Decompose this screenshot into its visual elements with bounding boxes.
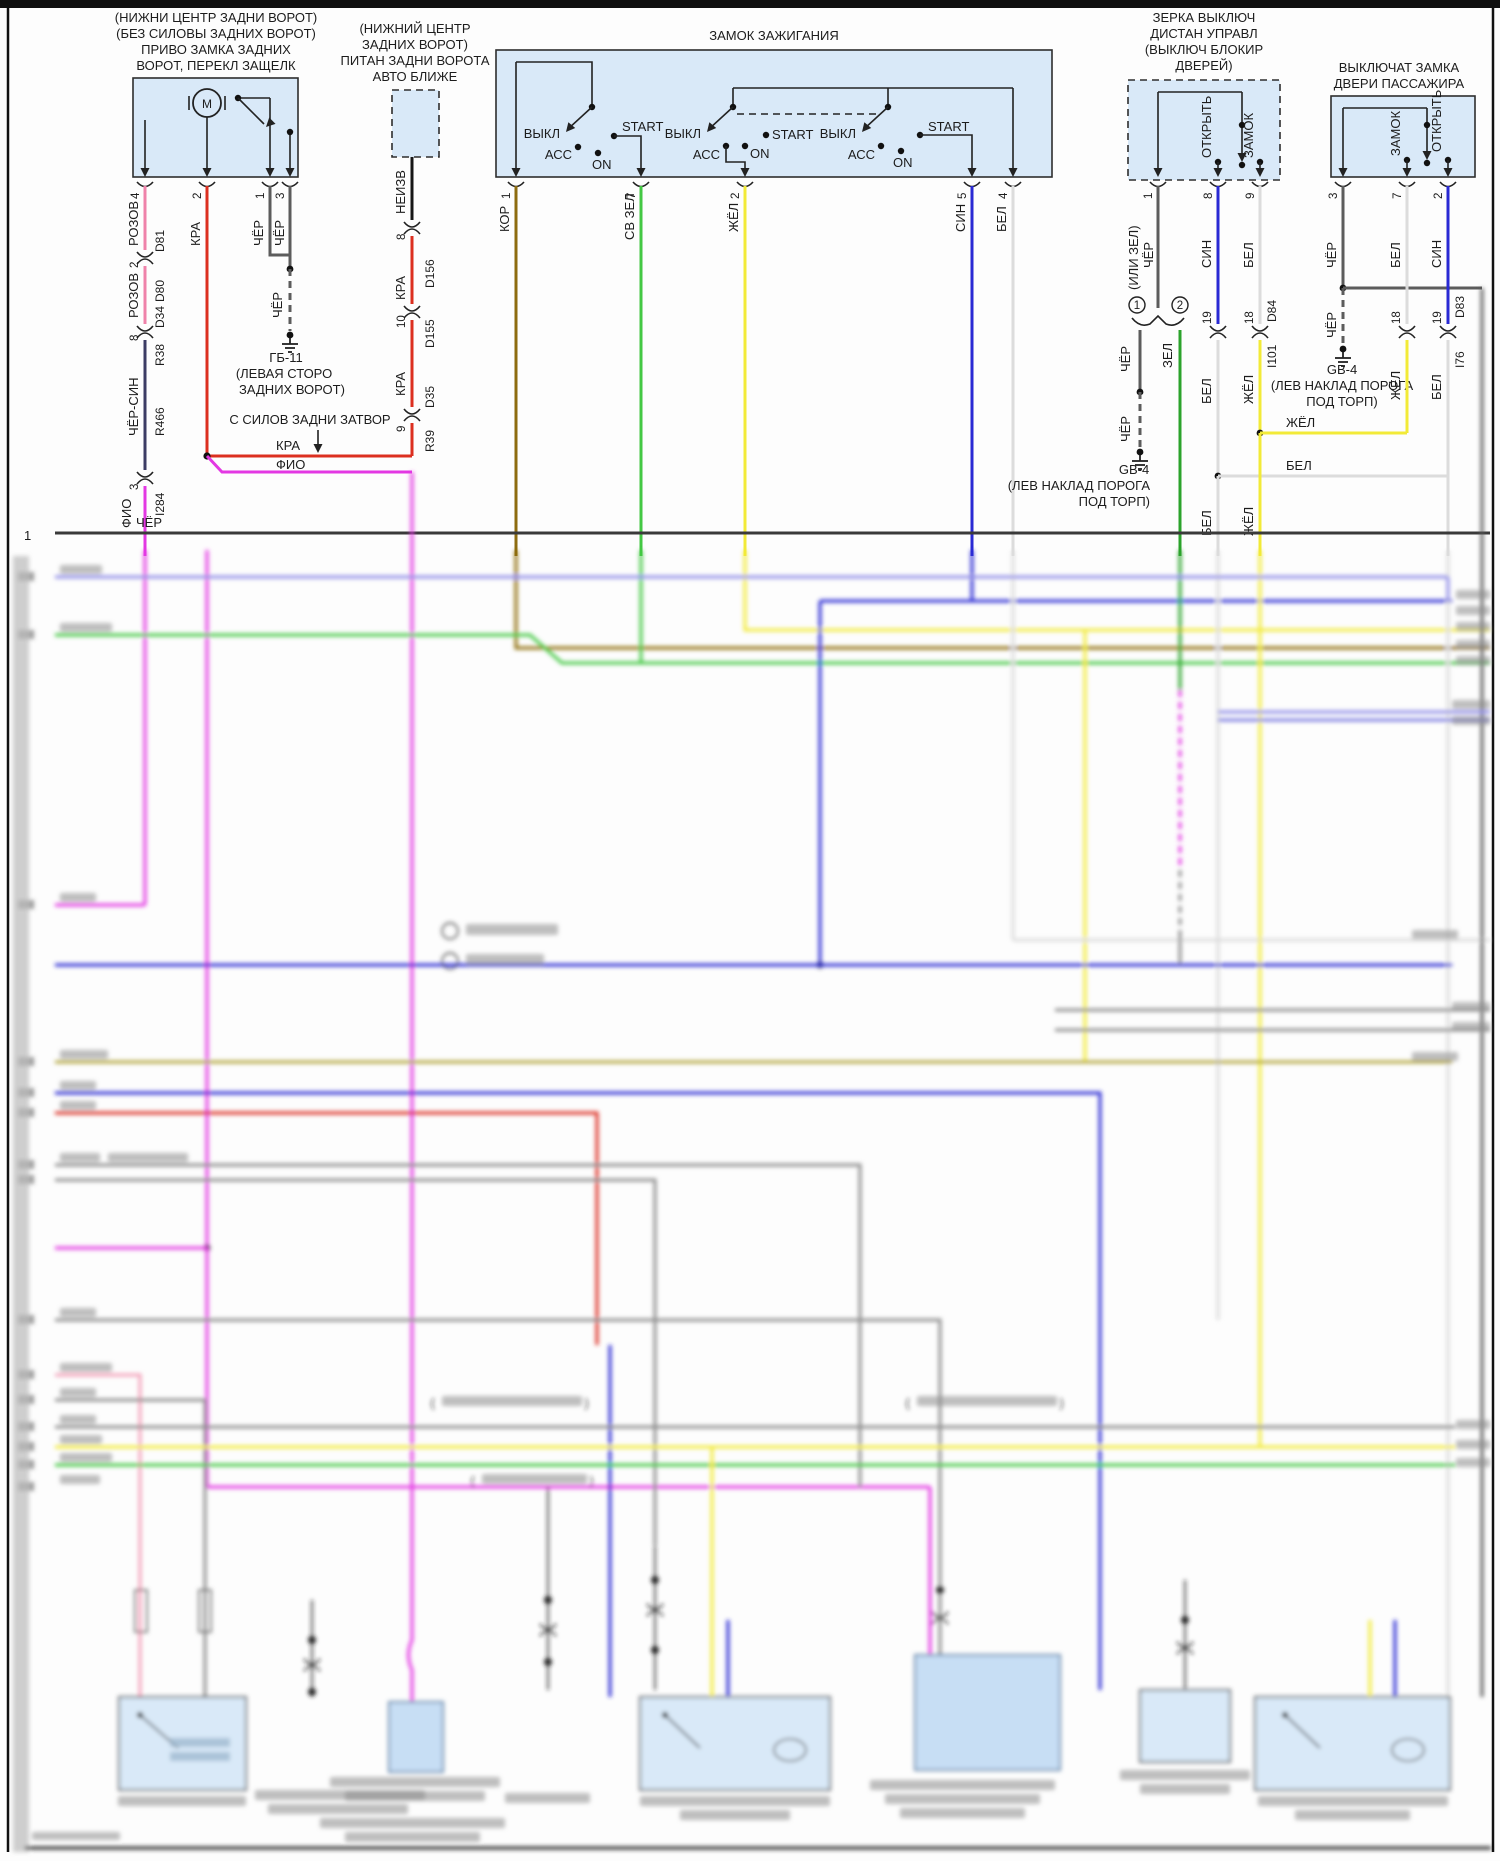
wire-color-label: КРА [188,222,203,246]
page-top-border [0,0,1500,8]
block-title: ПРИВО ЗАМКА ЗАДНИХ [141,42,291,57]
pin-number: 1 [501,193,513,199]
pin-number: 2 [129,262,141,268]
switch-position-unlock: ОТКРЫТЬ [1199,96,1214,158]
pin-number: 2 [1433,193,1445,199]
switch-position-off: ВЫКЛ [524,126,560,141]
block-title: ПИТАН ЗАДНИ ВОРОТА [341,53,490,68]
wire-color-label: БЕЛ [1199,378,1214,404]
mirror-switch-wires: (ИЛИ ЗЕЛ) ЧЁР 1 2 ЧЁР ЧЁР GB-4 (ЛЕВ НАКЛ… [1008,186,1448,556]
svg-text:⟨: ⟨ [470,1474,475,1489]
ground-location: ПОД ТОРП) [1079,494,1150,509]
switch-position-start: START [772,127,813,142]
pin-number: 18 [1391,311,1403,324]
power-gate-feed-note: С СИЛОВ ЗАДНИ ЗАТВОР КРА ФИО [203,412,412,472]
connector-id: I284 [153,492,167,516]
pin-number: 8 [129,335,141,341]
block-liftgate-feed: (НИЖНИЙ ЦЕНТР ЗАДНИХ ВОРОТ) ПИТАН ЗАДНИ … [341,21,490,456]
connector-id: R38 [153,344,167,366]
block-title: ДВЕРЕЙ) [1175,58,1232,73]
pin-number: 3 [129,484,141,490]
switch-position-off: ВЫКЛ [665,126,701,141]
svg-text:⟨: ⟨ [430,1396,435,1411]
wire-color-label: ЧЁР [136,515,162,530]
switch-position-start: START [622,119,663,134]
split-bracket [1132,316,1184,325]
block-title: (БЕЗ СИЛОВЫ ЗАДНИХ ВОРОТ) [116,26,316,41]
pin-number: 19 [1432,311,1444,324]
ignition-wires: КОР СВ ЗЕЛ ЖЁЛ СИН БЕЛ [497,186,1013,556]
switch-position-acc: АСС [848,147,875,162]
switch-position-lock: ЗАМОК [1388,111,1403,156]
wire-kra-main: КРА [188,186,207,456]
pin-number: 10 [396,315,408,328]
wire-color-label: ЖЁЛ [1388,371,1403,400]
block-title: ЗАМОК ЗАЖИГАНИЯ [709,28,838,43]
wire-color-label: ЧЁР [1118,346,1133,372]
block-title: ДИСТАН УПРАВЛ [1150,26,1257,41]
connector-id: D155 [423,319,437,348]
pin-number: 3 [275,193,287,199]
connector-id: R466 [153,407,167,436]
wire-color-label: ФИО [119,499,134,528]
svg-text:⟩: ⟩ [589,1474,594,1489]
switch-position-on: ON [893,155,913,170]
connector-id: D34 [153,306,167,328]
variant-2-marker: 2 [1177,300,1183,312]
pin-number: 3 [1328,193,1340,199]
wire-color-label: СИН [1429,240,1444,268]
ground-location: (ЛЕВ НАКЛАД ПОРОГА [1008,478,1151,493]
wiring-diagram: (НИЖНИ ЦЕНТР ЗАДНИ ВОРОТ) (БЕЗ СИЛОВЫ ЗА… [0,0,1500,1861]
block-title: ВОРОТ, ПЕРЕКЛ ЗАЩЕЛК [136,58,296,73]
wire-color-label: ЧЁР [251,220,266,246]
ground-id: GB-4 [1119,462,1149,477]
component-box [392,90,439,157]
switch-position-off: ВЫКЛ [820,126,856,141]
switch-position-acc: АСС [545,147,572,162]
wire-color-label: ЖЁЛ [1286,415,1315,430]
switch-position-lock: ЗАМОК [1241,113,1256,158]
wire-color-label: СВ ЗЕЛ [622,193,637,240]
connector-id: D84 [1265,300,1279,322]
pin-number: 1 [1143,193,1155,199]
block-title: АВТО БЛИЖЕ [373,69,458,84]
bus-row-1: 1 ЧЁР [24,515,1490,543]
wire-color-label: БЕЛ [1388,242,1403,268]
wire-color-label: КРА [276,438,300,453]
ground-location: ПОД ТОРП) [1306,394,1377,409]
connector-id: D80 [153,280,167,302]
pin-number: 2 [730,193,742,199]
block-tailgate-lock-actuator: (НИЖНИ ЦЕНТР ЗАДНИ ВОРОТ) (БЕЗ СИЛОВЫ ЗА… [115,10,318,199]
wire-color-label: БЕЛ [1241,242,1256,268]
pin-number: 4 [998,192,1010,199]
block-title: (НИЖНИЙ ЦЕНТР [359,21,470,36]
wire-color-label: ФИО [276,457,305,472]
pin-number: 7 [1392,193,1404,199]
motor-label: М [202,97,212,111]
connector-id: R39 [423,430,437,452]
wire-color-label: ЧЁР [1324,312,1339,338]
pin-number: 9 [1245,193,1257,199]
wire-color-label: ЧЁР [272,220,287,246]
svg-text:⟩: ⟩ [1059,1396,1064,1411]
block-title: (НИЖНИ ЦЕНТР ЗАДНИ ВОРОТ) [115,10,318,25]
wire-color-label: РОЗОВ [126,201,141,246]
pin-number: 4 [130,192,142,199]
wire-color-label: ЖЁЛ [726,203,741,232]
note-label: С СИЛОВ ЗАДНИ ЗАТВОР [229,412,390,427]
passenger-switch-wires: ЧЁР ЧЁР GB-4 (ЛЕВ НАКЛАД ПОРОГА ПОД ТОРП… [1271,186,1482,556]
connector-id: D35 [423,386,437,408]
connector-id: D83 [1453,296,1467,318]
block-title: ДВЕРИ ПАССАЖИРА [1334,76,1465,91]
wiring-diagram-page: (НИЖНИ ЦЕНТР ЗАДНИ ВОРОТ) (БЕЗ СИЛОВЫ ЗА… [0,0,1500,1861]
ground-id: GB-4 [1327,362,1357,377]
pin-number: 8 [396,234,408,240]
block-title: (ВЫКЛЮЧ БЛОКИР [1145,42,1263,57]
variant-1-marker: 1 [1134,300,1140,312]
pin-number: 19 [1202,311,1214,324]
pin-number: 9 [396,426,408,432]
wire-color-label: КРА [393,372,408,396]
wire-color-label: ЧЁР [1141,242,1156,268]
connector-id: I76 [1453,351,1467,368]
connector-id: D156 [423,259,437,288]
block-title: ЗАДНИХ ВОРОТ) [362,37,468,52]
wire-color-label: СИН [953,204,968,232]
wire-color-label: ЖЁЛ [1241,375,1256,404]
wire-color-label: ЧЁР [1118,416,1133,442]
ground-location: ЗАДНИХ ВОРОТ) [239,382,345,397]
ground-id: ГБ-11 [269,350,302,365]
ground-location: (ЛЕВАЯ СТОРО [236,366,332,381]
connector-id: D81 [153,230,167,252]
block-title: ЗЕРКА ВЫКЛЮЧ [1153,10,1256,25]
wire-color-label: ЧЁР [270,292,285,318]
wire-rozov-chain: РОЗОВ 2 D81 D80 РОЗОВ 8 D34 R38 ЧЁР-СИН … [119,186,167,556]
wire-cher-ground-gb11: ЧЁР ЧЁР ЧЁР ГБ-11 (ЛЕВАЯ СТОРО ЗАДНИХ ВО… [236,186,345,397]
wire-color-label: БЕЛ [1429,374,1444,400]
wire-color-label: (ИЛИ ЗЕЛ) [1126,225,1141,290]
block-mirror-remote-switch: ЗЕРКА ВЫКЛЮЧ ДИСТАН УПРАВЛ (ВЫКЛЮЧ БЛОКИ… [1128,10,1280,199]
switch-position-acc: АСС [693,147,720,162]
block-passenger-door-lock-switch: ВЫКЛЮЧАТ ЗАМКА ДВЕРИ ПАССАЖИРА ЗАМОК ОТК… [1328,60,1475,199]
wire-color-label: НЕИЗВ [393,170,408,214]
block-title: ВЫКЛЮЧАТ ЗАМКА [1339,60,1460,75]
pin-number: 8 [1203,193,1215,199]
scan-shadow [13,556,29,1852]
connector-id: I101 [1265,344,1279,368]
wire-color-label: ЧЁР [1324,242,1339,268]
blurred-scan-region: ⟨⟩ ⟨⟩ ⟨⟩ [13,288,1491,1852]
row-number: 1 [24,528,31,543]
wire-color-label: ЧЁР-СИН [126,378,141,436]
wire-color-label: БЕЛ [1286,458,1312,473]
wire-color-label: КОР [497,206,512,232]
svg-text:⟨: ⟨ [905,1396,910,1411]
wire-color-label: ЗЕЛ [1160,343,1175,368]
svg-text:⟩: ⟩ [584,1396,589,1411]
wire-color-label: КРА [393,276,408,300]
pin-number: 18 [1244,311,1256,324]
switch-position-on: ON [750,146,770,161]
switch-position-on: ON [592,157,612,172]
switch-position-start: START [928,119,969,134]
block-ignition-switch: ЗАМОК ЗАЖИГАНИЯ ВЫКЛ АСС ON START ВЫКЛ А… [496,28,1052,199]
pin-number: 1 [255,193,267,199]
wire-color-label: РОЗОВ [126,273,141,318]
pin-number: 2 [192,193,204,199]
bottom-component-boxes [119,1447,1450,1790]
wire-color-label: СИН [1199,240,1214,268]
pin-number: 5 [957,193,969,199]
switch-position-unlock: ОТКРЫТЬ [1429,90,1444,152]
wire-color-label: БЕЛ [994,206,1009,232]
